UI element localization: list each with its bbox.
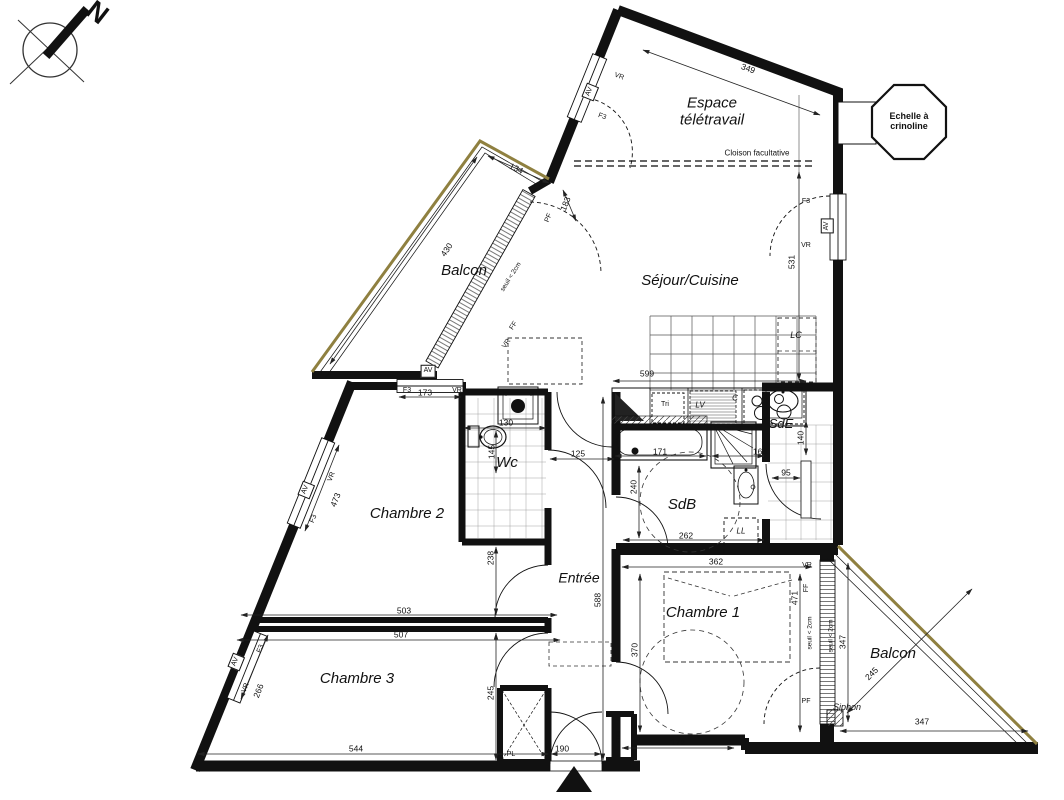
dim-531: 531 bbox=[787, 255, 796, 269]
dim-130: 130 bbox=[499, 418, 513, 427]
dim-370: 370 bbox=[630, 643, 639, 657]
north-compass bbox=[10, 9, 88, 84]
dim-362: 362 bbox=[709, 557, 723, 566]
dim-140: 140 bbox=[796, 431, 805, 445]
kitchen-floor-grid bbox=[650, 316, 816, 390]
fixture-label-siphon: Siphon bbox=[833, 703, 861, 713]
dim-599: 599 bbox=[640, 369, 654, 378]
dim-544: 544 bbox=[349, 744, 363, 753]
dim-507: 507 bbox=[394, 630, 408, 639]
dim-173: 173 bbox=[418, 388, 432, 397]
fixture-label-pl: PL bbox=[507, 751, 516, 759]
tag-vr-alcove: VR bbox=[452, 387, 462, 395]
balcony-rails bbox=[312, 141, 1037, 748]
dim-262: 262 bbox=[679, 531, 693, 540]
fixture-label-hob: C bbox=[732, 395, 738, 404]
note-echelle-crinoline: Echelle à crinoline bbox=[880, 112, 938, 132]
closet-cross-icon bbox=[502, 690, 546, 760]
dim-171: 171 bbox=[653, 447, 667, 456]
room-label-sde: SdE bbox=[769, 417, 794, 431]
tag-av-sejour: AV bbox=[821, 219, 834, 234]
dim-347-h: 347 bbox=[915, 717, 929, 726]
dim-166: 166 bbox=[753, 447, 767, 456]
tag-vr-balcon-se: VR bbox=[802, 562, 812, 570]
note-cloison-facultative: Cloison facultative bbox=[725, 150, 790, 159]
floorplan-page: N Espace télétravail Séjour/Cuisine Balc… bbox=[0, 0, 1064, 800]
tag-pf-balcon-se: PF bbox=[802, 698, 811, 706]
room-label-sejour: Séjour/Cuisine bbox=[641, 273, 739, 290]
room-label-balcon-se: Balcon bbox=[870, 646, 916, 663]
room-label-wc: Wc bbox=[496, 455, 518, 472]
room-label-chambre1: Chambre 1 bbox=[666, 605, 740, 622]
dim-503: 503 bbox=[397, 606, 411, 615]
sde-basin-icon bbox=[766, 387, 802, 418]
room-label-espace: Espace télétravail bbox=[657, 96, 767, 129]
fixture-label-lc: LC bbox=[790, 331, 802, 341]
fixture-label-tri: Tri bbox=[661, 401, 669, 409]
room-label-balcon-nw: Balcon bbox=[441, 263, 487, 280]
dim-145: 145 bbox=[487, 445, 496, 459]
fixture-label-etel: ETEL bbox=[617, 729, 624, 744]
sdb-basin-icon bbox=[734, 466, 758, 504]
fixture-label-ll: LL bbox=[737, 528, 746, 537]
dim-95: 95 bbox=[781, 468, 790, 477]
dim-245-ch3: 245 bbox=[486, 686, 495, 700]
dim-240: 240 bbox=[629, 480, 638, 494]
dim-588: 588 bbox=[593, 593, 602, 607]
room-label-entree: Entrée bbox=[558, 570, 599, 585]
dim-190: 190 bbox=[555, 744, 569, 753]
room-label-sdb: SdB bbox=[668, 497, 696, 514]
dim-471: 471 bbox=[790, 591, 799, 605]
turning-circle bbox=[640, 630, 744, 734]
note-seuil-se-2: seuil < 2cm bbox=[827, 619, 834, 652]
tag-vr-sejour: VR bbox=[801, 242, 811, 250]
dim-347-v: 347 bbox=[838, 635, 847, 649]
dim-125: 125 bbox=[571, 449, 585, 458]
dim-238: 238 bbox=[486, 551, 495, 565]
tag-av-alcove: AV bbox=[421, 365, 436, 378]
room-label-chambre2: Chambre 2 bbox=[370, 506, 444, 523]
entry-door bbox=[550, 761, 602, 792]
dim-172: 172 bbox=[671, 738, 685, 747]
tag-f3-sejour: F3 bbox=[802, 198, 810, 206]
cloison-facultative-line bbox=[574, 161, 814, 166]
fixtures bbox=[468, 387, 843, 760]
note-seuil-se-1: seuil < 2cm bbox=[806, 616, 813, 649]
tag-ff-balcon-se: FF bbox=[803, 584, 811, 593]
room-label-chambre3: Chambre 3 bbox=[320, 671, 394, 688]
tag-f3-alcove: F3 bbox=[403, 387, 411, 395]
fixture-label-lv: LV bbox=[695, 402, 704, 411]
